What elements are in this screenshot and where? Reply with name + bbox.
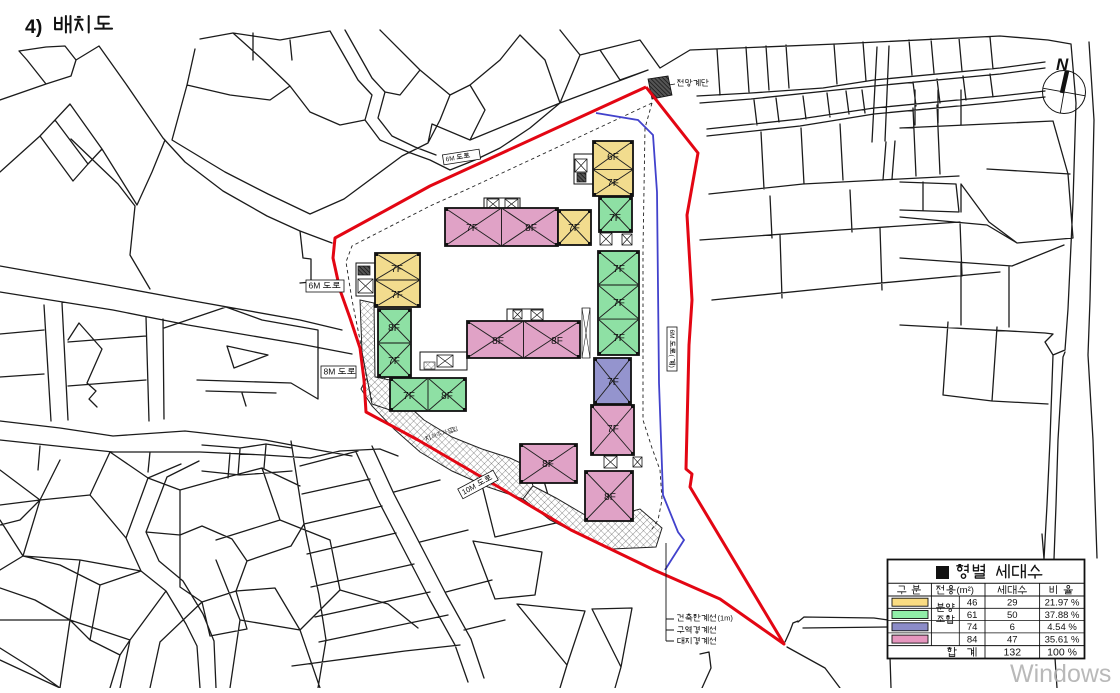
svg-text:8F: 8F — [441, 391, 453, 402]
svg-text:6M: 6M — [668, 330, 675, 339]
svg-text:Windows: Windows — [1010, 660, 1111, 688]
svg-text:7F: 7F — [607, 178, 619, 189]
svg-text:7F: 7F — [568, 223, 580, 234]
svg-text:8F: 8F — [525, 223, 537, 234]
svg-text:8F: 8F — [604, 492, 616, 503]
svg-text:47: 47 — [1007, 635, 1018, 646]
svg-text:100 %: 100 % — [1047, 647, 1077, 659]
svg-text:29: 29 — [1007, 598, 1018, 609]
svg-text:132: 132 — [1004, 647, 1022, 659]
svg-text:6M: 6M — [445, 155, 455, 163]
svg-text:7F: 7F — [466, 223, 478, 234]
svg-text:84: 84 — [967, 635, 978, 646]
svg-text:61: 61 — [967, 610, 978, 621]
svg-text:8F: 8F — [388, 323, 400, 334]
svg-text:7F: 7F — [391, 264, 403, 275]
svg-text:37.88 %: 37.88 % — [1045, 610, 1080, 621]
svg-text:): ) — [668, 366, 675, 368]
svg-text:7F: 7F — [388, 356, 400, 367]
svg-text:8F: 8F — [492, 336, 504, 347]
svg-text:7F: 7F — [607, 377, 619, 388]
svg-text:8F: 8F — [551, 336, 563, 347]
svg-text:7F: 7F — [613, 333, 625, 344]
svg-text:(1m): (1m) — [718, 613, 734, 622]
svg-text:7F: 7F — [609, 213, 621, 224]
svg-text:7F: 7F — [607, 424, 619, 435]
svg-text:7F: 7F — [391, 290, 403, 301]
svg-text:N: N — [1056, 55, 1069, 74]
svg-text:8F: 8F — [542, 459, 554, 470]
svg-text:46: 46 — [967, 598, 978, 609]
svg-text:74: 74 — [967, 622, 978, 633]
svg-text:35.61 %: 35.61 % — [1045, 635, 1080, 646]
svg-text:6: 6 — [1010, 622, 1015, 633]
svg-text:50: 50 — [1007, 610, 1018, 621]
svg-text:(m²): (m²) — [957, 585, 974, 596]
svg-text:21.97 %: 21.97 % — [1045, 598, 1080, 609]
svg-text:7F: 7F — [613, 298, 625, 309]
svg-text:4): 4) — [25, 16, 42, 38]
svg-text:6F: 6F — [607, 152, 619, 163]
svg-text:8M: 8M — [324, 367, 336, 377]
svg-text:7F: 7F — [613, 264, 625, 275]
svg-text:6M: 6M — [309, 281, 321, 291]
svg-text:4.54 %: 4.54 % — [1047, 622, 1077, 633]
svg-text:7F: 7F — [403, 391, 415, 402]
